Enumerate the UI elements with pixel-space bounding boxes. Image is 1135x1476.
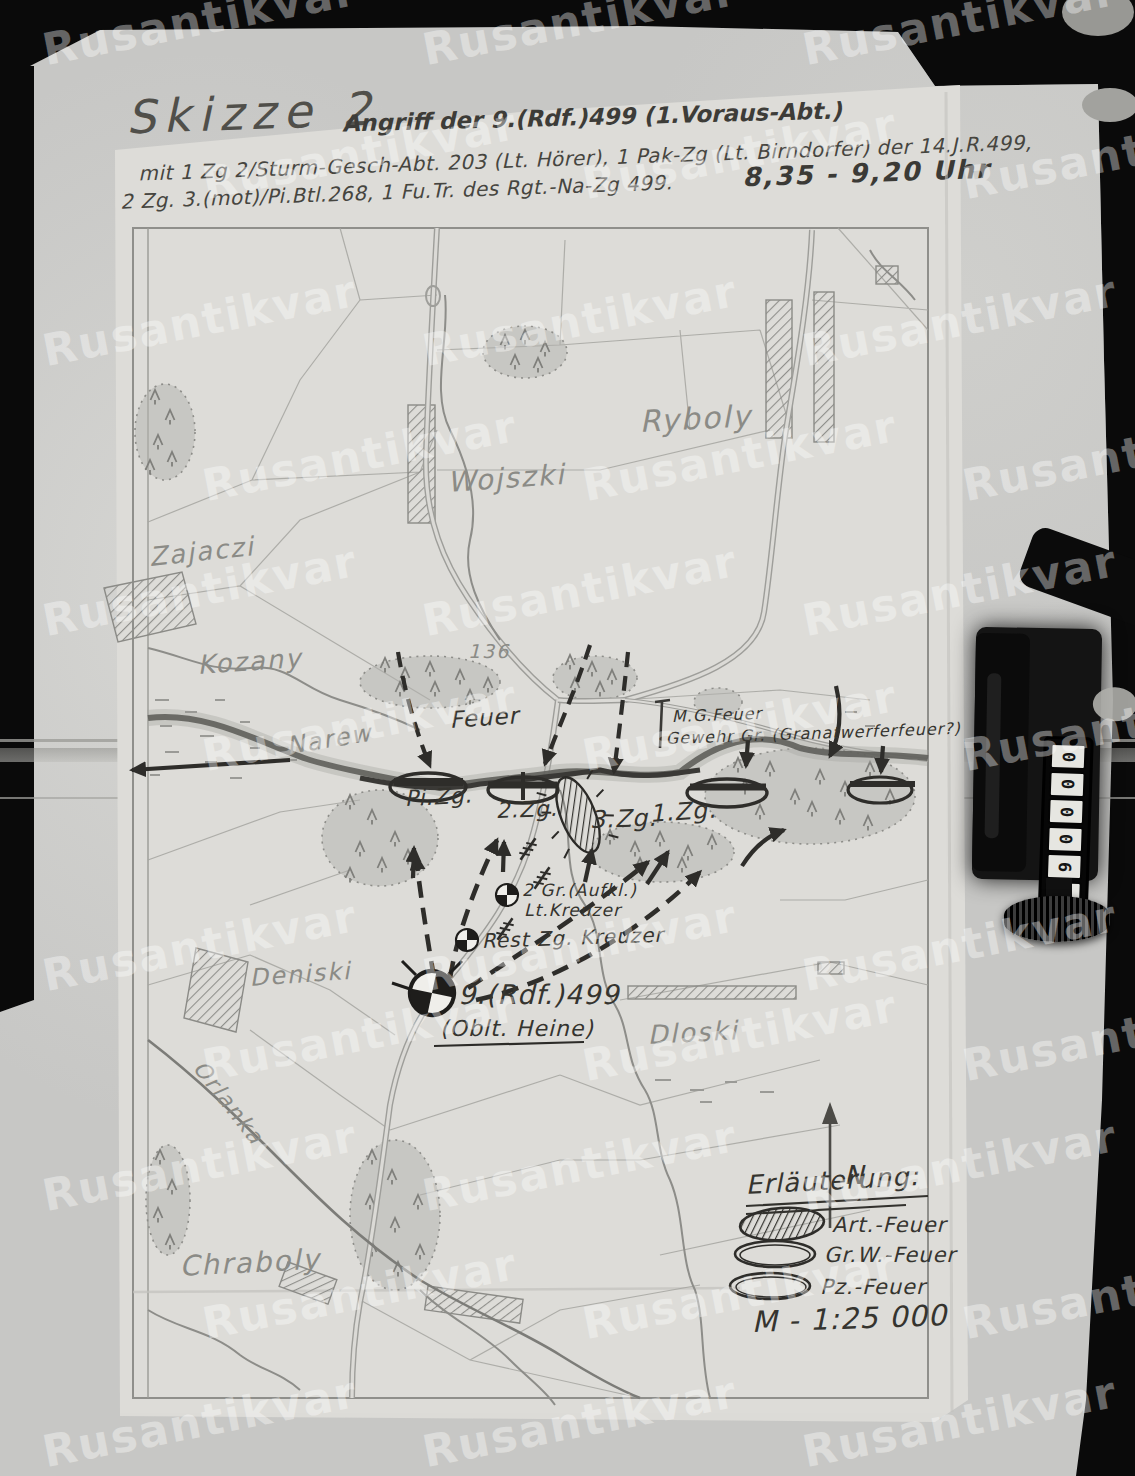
hq-symbol [392,961,462,1019]
label-dloski: Dloski [647,1015,740,1050]
label-narew: Narew [285,719,375,760]
label-aufkl-line1: 2 Gr.(Aufkl.) [522,880,637,900]
counter-side-panel [972,633,1030,872]
label-rest-zg: Rest Zg. Kreuzer [481,923,665,953]
label-deniski: Deniski [248,957,352,992]
counter-knurled-wheel [1004,896,1110,942]
label-wojszki: Wojszki [446,458,567,499]
legend-pz-feuer: Pz.-Feuer [820,1275,928,1299]
counter-digit: 0 [1048,798,1085,825]
label-3-zg: 3.Zg. [589,804,657,834]
label-mg-feuer: M.G.Feuer [671,704,763,726]
label-pi-zg: Pi.Zg. [404,782,473,811]
recon-symbol-aufkl [496,884,518,906]
counter-digit: 0 [1047,826,1084,853]
counter-highlight [1093,687,1135,722]
label-orlanka: Orlanka [188,1056,269,1150]
counter-slot [985,673,1002,838]
label-2-zg: 2.Zg. [495,796,558,823]
label-ryboly: Ryboly [639,398,754,439]
label-1-zg: 1.Zg. [648,795,717,828]
counter-body: 000062 [972,627,1102,881]
label-feuer: Feuer [449,702,522,733]
map-labels: Ryboly Wojszki Zajaczi Kozany Narew Deni… [147,398,961,1339]
photograph: Skizze 2 Angriff der 9.(Rdf.)499 (1.Vora… [0,0,1135,1476]
label-zajaczi: Zajaczi [147,531,256,572]
map-scale: M - 1:25 000 [751,1298,949,1339]
label-hq-unit: 9.(Rdf.)499 [458,979,620,1010]
legend-grw-feuer: Gr.W.-Feuer [824,1243,958,1267]
label-aufkl-line2: Lt.Kreuzer [524,900,623,920]
counter-clamp-arm [1016,524,1135,634]
tally-counter-device: 000062 [960,540,1135,960]
counter-digit: 0 [1049,771,1086,798]
legend-heading: Erläuterung: [745,1161,920,1200]
recon-symbol-rest-zg [456,929,478,951]
photo-edge-artifact [1082,88,1135,122]
counter-digit: 6 [1046,853,1083,880]
legend-art-feuer: Art.-Feuer [832,1213,949,1237]
counter-digit: 0 [1050,743,1087,770]
label-height-136: 136 [468,640,510,662]
label-hq-leader: (Oblt. Heine) [440,1016,594,1041]
